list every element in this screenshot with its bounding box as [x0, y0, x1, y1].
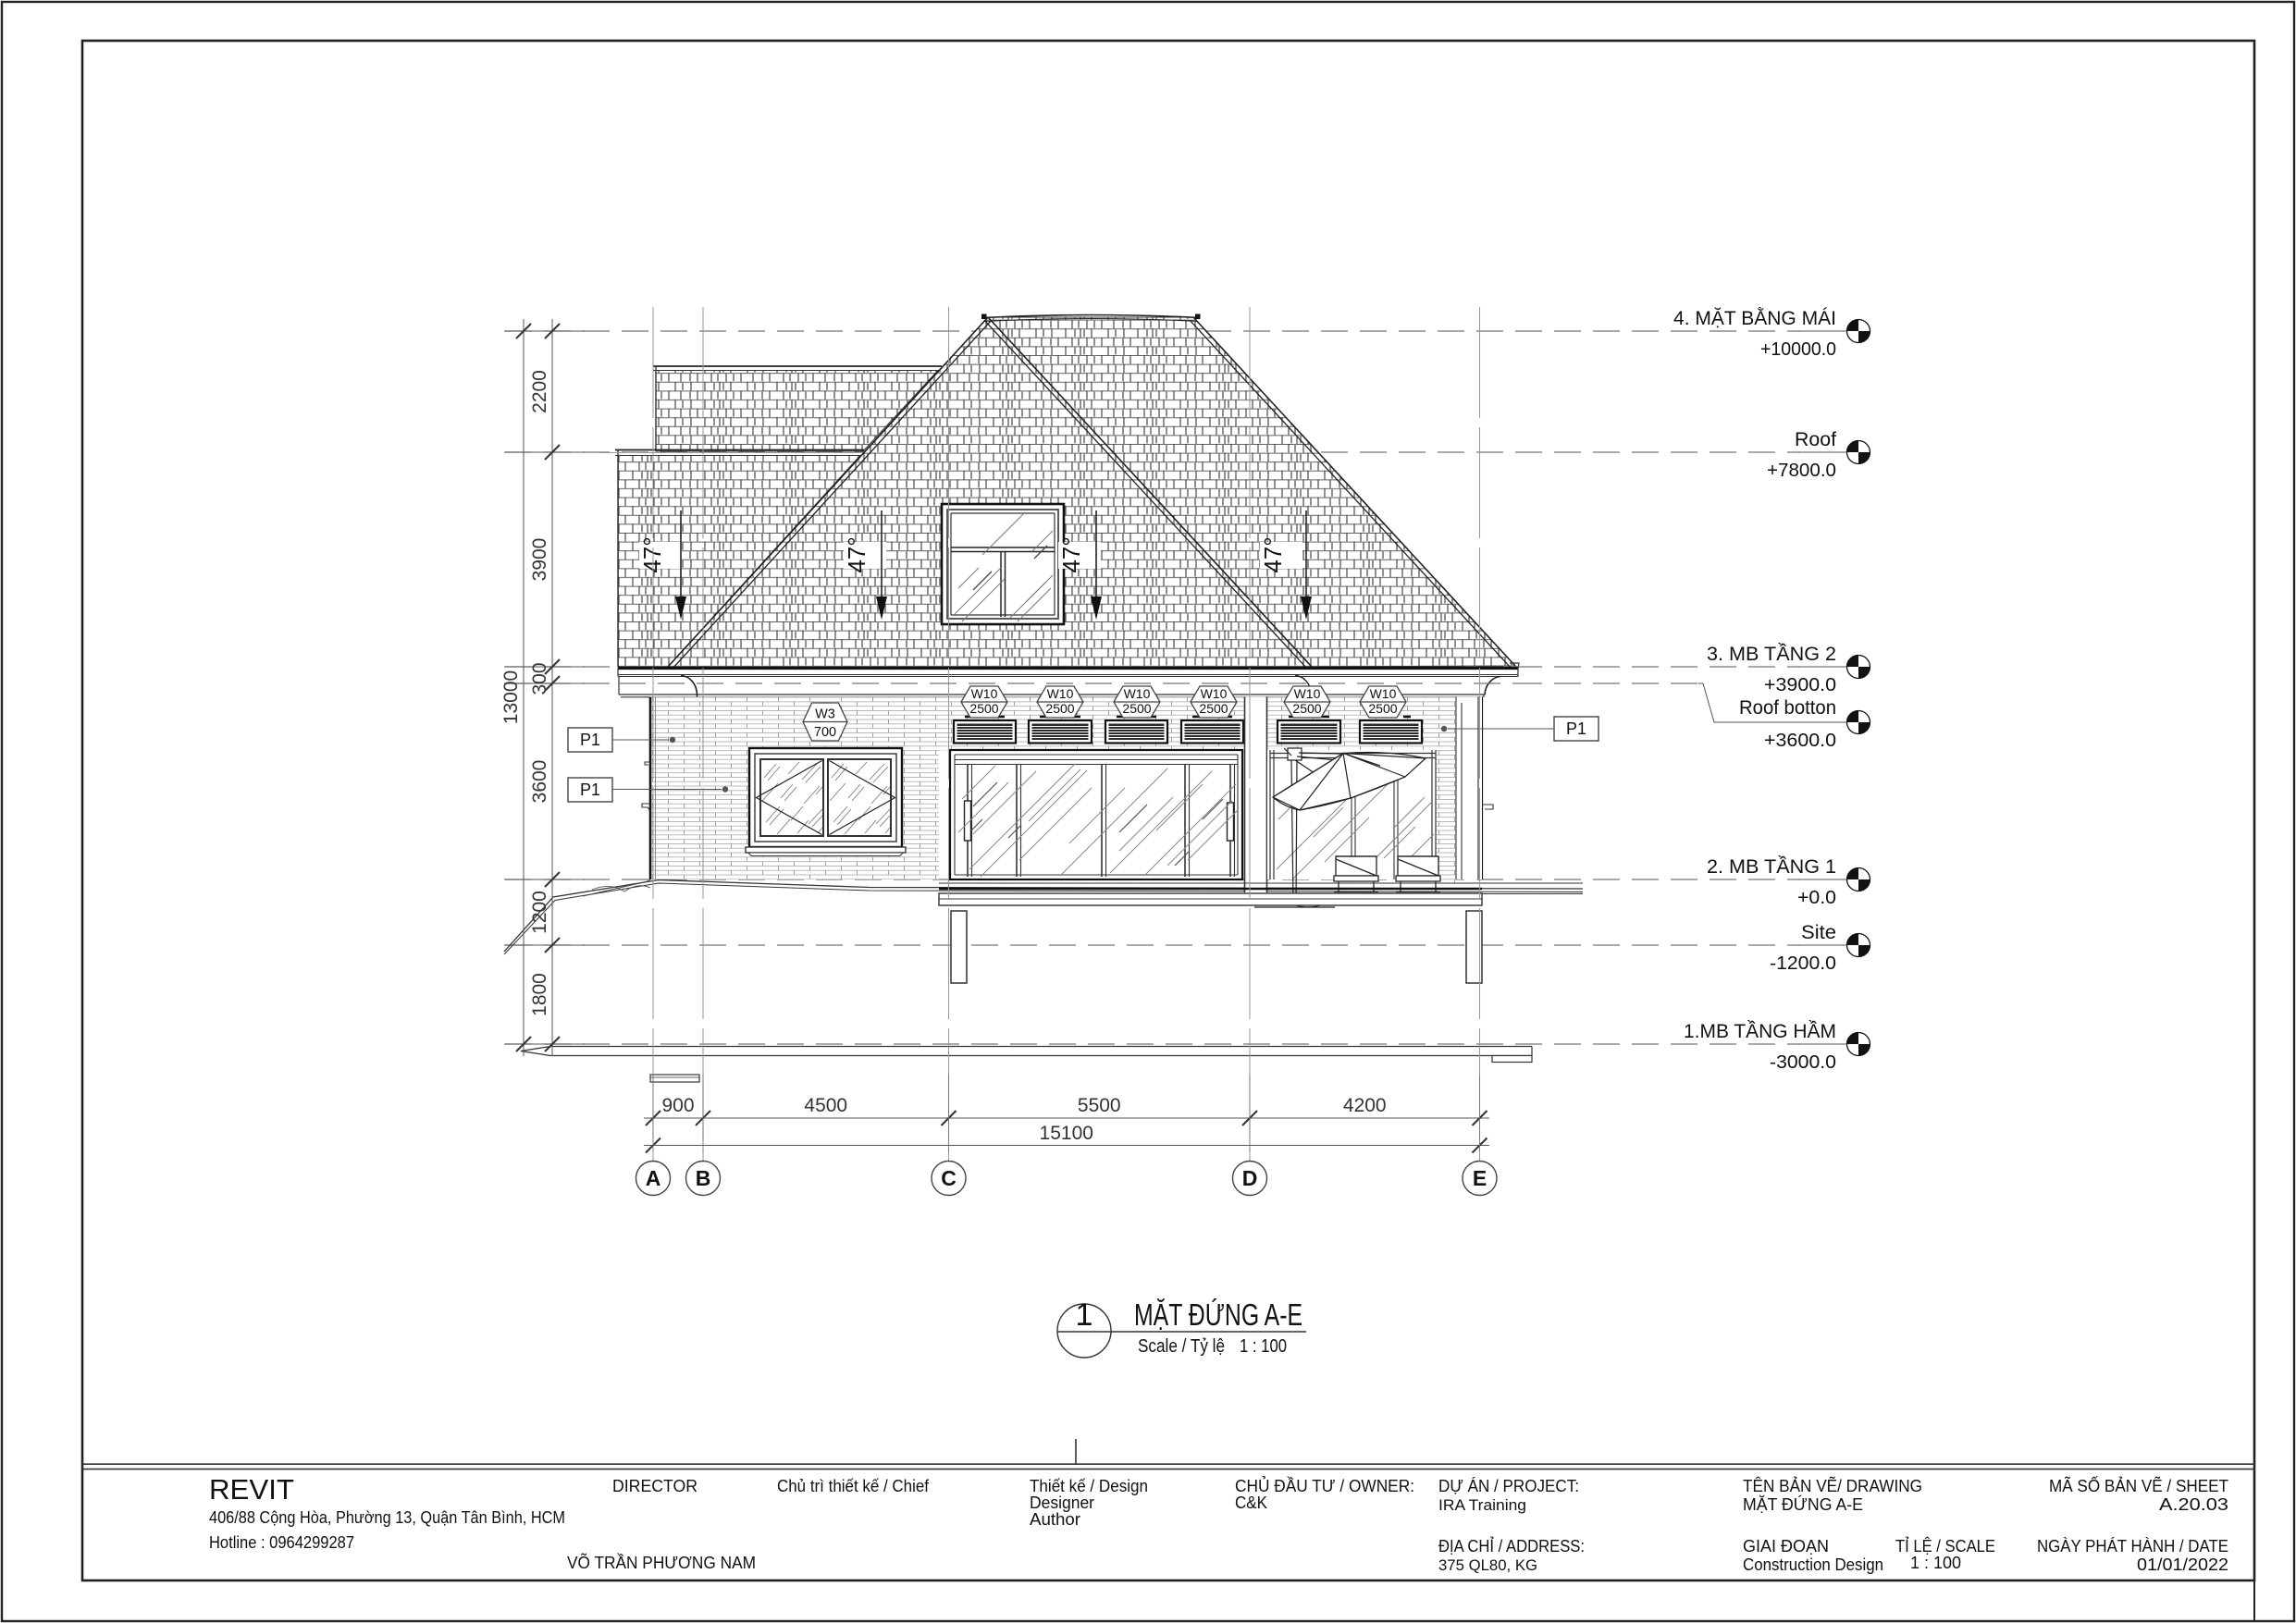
svg-text:P1: P1 [580, 731, 600, 749]
svg-text:+7800.0: +7800.0 [1767, 461, 1836, 481]
svg-text:VÕ TRẦN PHƯƠNG NAM: VÕ TRẦN PHƯƠNG NAM [567, 1553, 756, 1572]
svg-text:1 : 100: 1 : 100 [1240, 1336, 1287, 1357]
svg-text:47°: 47° [1057, 536, 1085, 572]
svg-text:W10: W10 [1294, 686, 1321, 701]
svg-text:+0.0: +0.0 [1797, 888, 1836, 908]
svg-text:2500: 2500 [969, 701, 998, 716]
svg-text:Construction Design: Construction Design [1743, 1555, 1883, 1574]
svg-text:W10: W10 [1370, 686, 1397, 701]
svg-text:4200: 4200 [1343, 1095, 1387, 1116]
svg-text:300: 300 [529, 662, 550, 695]
svg-text:1200: 1200 [529, 891, 550, 934]
svg-text:W10: W10 [971, 686, 998, 701]
svg-text:W10: W10 [1201, 686, 1228, 701]
svg-text:-1200.0: -1200.0 [1770, 953, 1836, 974]
svg-text:D: D [1242, 1166, 1258, 1190]
svg-text:W10: W10 [1047, 686, 1074, 701]
svg-text:Author: Author [1030, 1510, 1080, 1529]
svg-text:DIRECTOR: DIRECTOR [612, 1477, 697, 1495]
svg-text:Site: Site [1801, 922, 1836, 943]
svg-text:C&K: C&K [1235, 1494, 1267, 1512]
svg-text:Thiết kế / Design: Thiết kế / Design [1030, 1477, 1148, 1495]
svg-text:2200: 2200 [529, 370, 550, 413]
svg-text:1 : 100: 1 : 100 [1910, 1554, 1961, 1572]
svg-text:2500: 2500 [1199, 701, 1228, 716]
svg-text:MẶT ĐỨNG A-E: MẶT ĐỨNG A-E [1134, 1297, 1302, 1332]
svg-text:MẶT ĐỨNG A-E: MẶT ĐỨNG A-E [1743, 1494, 1863, 1514]
svg-text:B: B [696, 1166, 711, 1190]
svg-text:Roof: Roof [1795, 429, 1836, 450]
svg-text:Chủ trì thiết kế / Chief: Chủ trì thiết kế / Chief [777, 1477, 930, 1495]
svg-text:47°: 47° [638, 536, 666, 572]
svg-text:A.20.03: A.20.03 [2159, 1495, 2228, 1514]
svg-text:1: 1 [1076, 1297, 1093, 1333]
svg-text:47°: 47° [843, 536, 870, 572]
svg-text:W10: W10 [1124, 686, 1151, 701]
svg-text:Roof botton: Roof botton [1739, 697, 1836, 719]
svg-text:3. MB TẦNG 2: 3. MB TẦNG 2 [1707, 644, 1836, 665]
svg-text:TÊN BẢN VẼ/ DRAWING: TÊN BẢN VẼ/ DRAWING [1743, 1476, 1922, 1495]
svg-text:2500: 2500 [1045, 701, 1074, 716]
svg-text:2500: 2500 [1292, 701, 1321, 716]
svg-text:2500: 2500 [1122, 701, 1151, 716]
svg-text:Scale / Tỷ lệ: Scale / Tỷ lệ [1138, 1336, 1225, 1357]
svg-text:ĐỊA CHỈ / ADDRESS:: ĐỊA CHỈ / ADDRESS: [1438, 1536, 1585, 1555]
svg-text:4. MẶT BẰNG MÁI: 4. MẶT BẰNG MÁI [1673, 307, 1836, 329]
svg-text:E: E [1473, 1166, 1487, 1190]
svg-text:CHỦ ĐẦU TƯ / OWNER:: CHỦ ĐẦU TƯ / OWNER: [1235, 1476, 1414, 1495]
svg-text:5500: 5500 [1078, 1095, 1121, 1116]
svg-text:900: 900 [661, 1095, 694, 1116]
svg-text:3600: 3600 [529, 760, 550, 804]
svg-text:+3600.0: +3600.0 [1764, 731, 1836, 751]
svg-text:3900: 3900 [529, 538, 550, 582]
svg-text:NGÀY PHÁT HÀNH / DATE: NGÀY PHÁT HÀNH / DATE [2037, 1537, 2228, 1555]
svg-text:375 QL80, KG: 375 QL80, KG [1438, 1556, 1537, 1574]
svg-text:47°: 47° [1259, 536, 1287, 572]
svg-text:C: C [941, 1166, 957, 1190]
svg-text:A: A [646, 1166, 661, 1190]
svg-text:1800: 1800 [529, 973, 550, 1016]
svg-text:GIAI ĐOẠN: GIAI ĐOẠN [1743, 1537, 1829, 1555]
svg-text:15100: 15100 [1040, 1123, 1093, 1144]
svg-text:Designer: Designer [1030, 1494, 1094, 1512]
svg-text:+3900.0: +3900.0 [1764, 675, 1836, 695]
svg-text:700: 700 [814, 725, 836, 740]
svg-text:+10000.0: +10000.0 [1760, 339, 1836, 360]
svg-text:-3000.0: -3000.0 [1770, 1052, 1836, 1073]
svg-text:406/88 Cộng Hòa, Phường 13, Qu: 406/88 Cộng Hòa, Phường 13, Quận Tân Bìn… [209, 1508, 565, 1527]
svg-text:IRA Training: IRA Training [1438, 1496, 1526, 1514]
svg-text:W3: W3 [815, 707, 835, 722]
svg-text:2500: 2500 [1368, 701, 1397, 716]
svg-text:4500: 4500 [804, 1095, 847, 1116]
svg-text:P1: P1 [1566, 719, 1586, 738]
svg-text:13000: 13000 [500, 670, 522, 724]
svg-text:REVIT: REVIT [209, 1473, 294, 1506]
svg-text:DỰ ÁN / PROJECT:: DỰ ÁN / PROJECT: [1438, 1477, 1579, 1495]
svg-text:P1: P1 [580, 781, 600, 799]
svg-text:Hotline : 0964299287: Hotline : 0964299287 [209, 1533, 354, 1552]
svg-text:MÃ SỐ BẢN VẼ / SHEET: MÃ SỐ BẢN VẼ / SHEET [2049, 1476, 2228, 1495]
svg-text:1.MB TẦNG HẦM: 1.MB TẦNG HẦM [1684, 1021, 1836, 1042]
svg-text:TỈ LỆ / SCALE: TỈ LỆ / SCALE [1895, 1536, 1995, 1555]
svg-text:2. MB TẦNG 1: 2. MB TẦNG 1 [1707, 856, 1836, 878]
svg-text:01/01/2022: 01/01/2022 [2137, 1555, 2228, 1574]
